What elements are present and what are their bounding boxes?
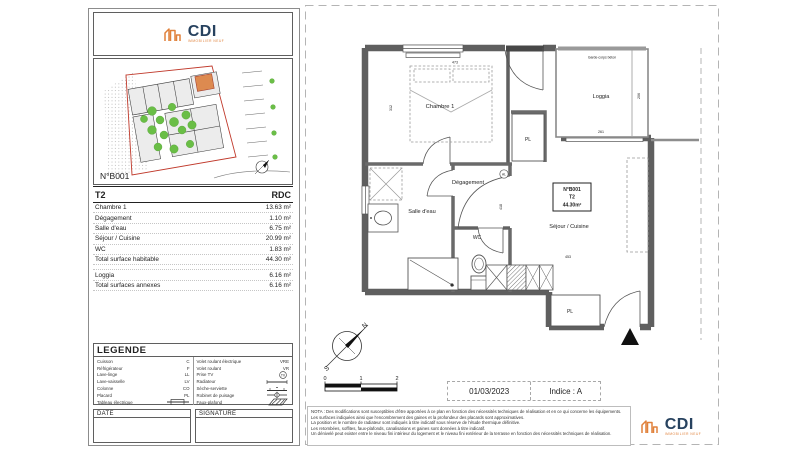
compass: N S [323,321,369,372]
unit-tag-number: N°B001 [563,187,581,193]
dim-loggia-width: 261 [598,130,604,134]
dim-chambre-width: 473 [452,61,458,65]
nota-line: Un dénivelé peut exister entre le niveau… [311,431,627,437]
living-label: Séjour / Cuisine [549,224,589,230]
loggia-area: Garde-corps béton Loggia 261 206 [556,47,648,138]
bathroom-label: Salle d'eau [408,209,436,215]
closet-bottom-label: PL [567,309,573,315]
entrance-arrow [621,328,639,345]
unit-tag-type: T2 [569,195,575,201]
false-ceiling-zone [627,158,648,252]
vent-symbol: AL [500,170,508,178]
brand-name: CDI [665,418,702,432]
brand-tagline: IMMOBILIER NEUF [665,432,702,436]
floor-plan-drawing: Garde-corps béton Loggia 261 206 Chambre… [0,0,800,450]
dim-loggia-height: 206 [637,93,641,99]
nota-block: NOTA : Des modifications sont susceptibl… [307,406,631,446]
hallway-label: Dégagement [452,180,484,186]
loggia-label: Loggia [593,94,611,100]
footer-logo: CDI IMMOBILIER NEUF [625,408,715,445]
title-block: 01/03/2023 Indice : A [447,381,601,401]
scale-bar: 0 1 2 [323,376,398,391]
dim-chambre-height: 312 [389,105,393,111]
svg-text:1: 1 [359,376,362,382]
kitchen-fixtures [486,265,553,290]
closet-bottom [551,295,600,326]
plan-indice: Indice : A [530,382,600,400]
unit-tag-box: N°B001 T2 44.30m² [553,183,591,211]
svg-text:2: 2 [395,376,398,382]
svg-text:0: 0 [323,376,326,382]
plan-date: 01/03/2023 [448,382,530,400]
radiator [406,53,460,58]
svg-text:AL: AL [502,173,506,177]
wc-fixtures [471,255,487,290]
roller-shutter-band2 [506,46,544,52]
unit-tag-area: 44.30m² [563,203,582,209]
cdi-buildings-icon [639,417,661,436]
closet-top-label: PL [525,137,531,143]
bedroom-label: Chambre 1 [426,104,455,110]
compass-north: N [361,321,369,330]
cdi-logo: CDI IMMOBILIER NEUF [639,417,702,436]
dim-sejour-width: 453 [565,255,571,259]
garde-corps-label: Garde-corps béton [588,56,616,60]
wc-label: WC [473,235,482,241]
plan-sheet: CDI IMMOBILIER NEUF [0,0,800,450]
bathroom-fixtures [368,168,458,290]
nota-line: NOTA : Des modifications sont susceptibl… [311,409,627,415]
dim-hall-height: 418 [499,204,503,210]
